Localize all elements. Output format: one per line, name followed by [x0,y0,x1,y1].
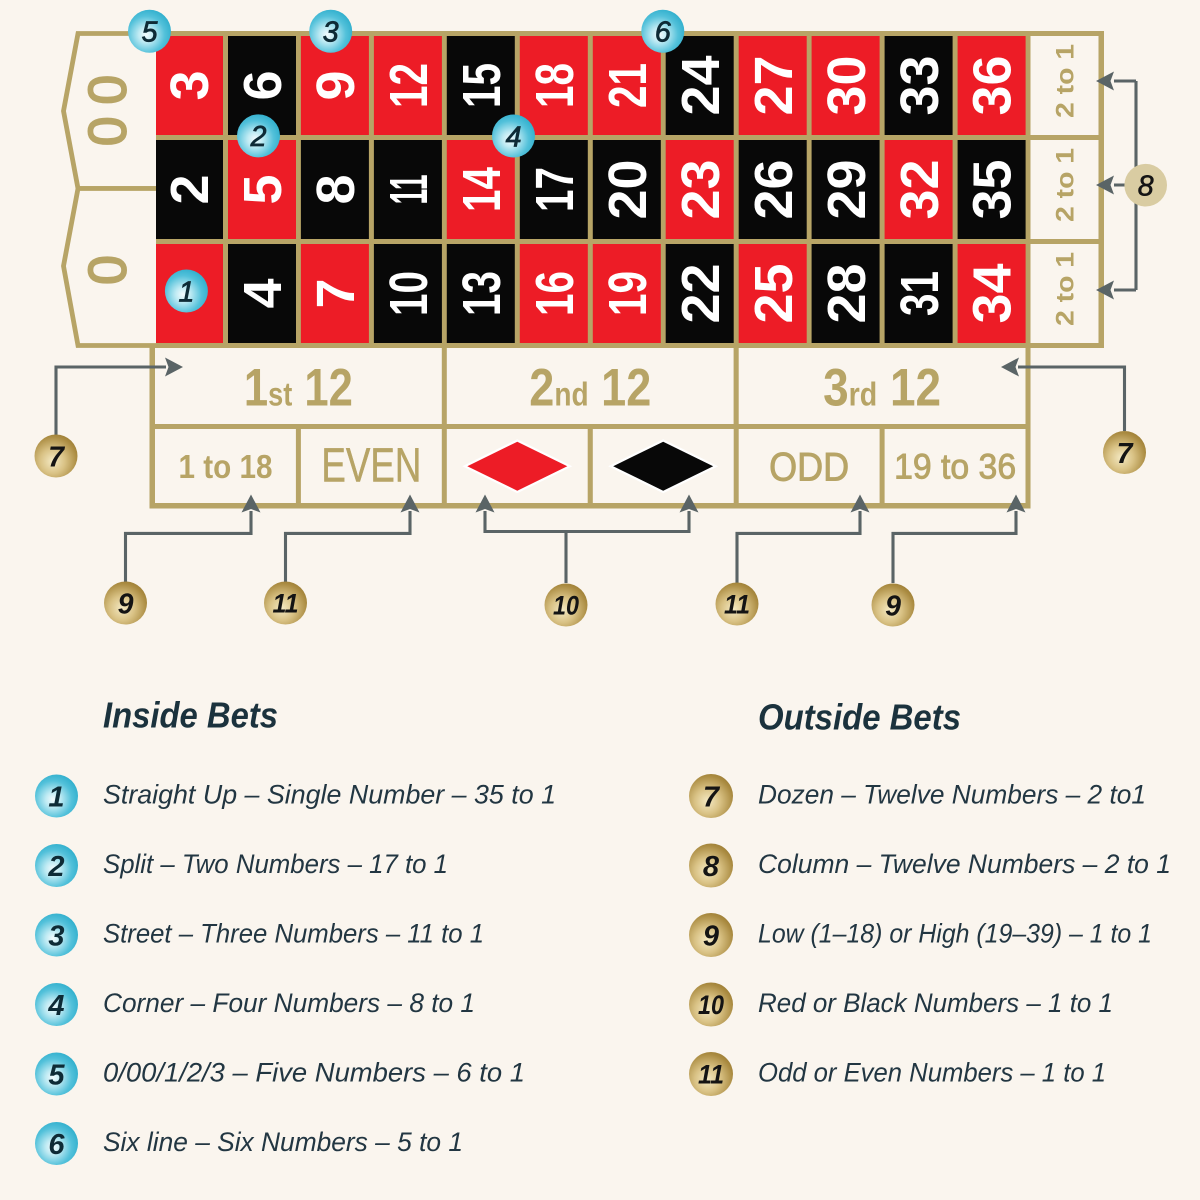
svg-text:7: 7 [703,781,721,813]
svg-text:1st 12: 1st 12 [244,359,353,418]
svg-text:1: 1 [48,781,64,813]
svg-text:3: 3 [48,920,64,952]
svg-text:11: 11 [698,1060,724,1090]
svg-text:28: 28 [817,264,877,324]
svg-text:13: 13 [452,271,512,316]
svg-text:12: 12 [379,63,439,108]
svg-text:9: 9 [306,70,366,100]
svg-text:9: 9 [118,588,134,620]
svg-text:35: 35 [963,160,1023,220]
svg-text:19 to 36: 19 to 36 [894,447,1016,486]
svg-text:2nd 12: 2nd 12 [529,359,651,418]
svg-text:23: 23 [671,160,731,220]
svg-text:32: 32 [890,160,950,220]
svg-text:8: 8 [1138,171,1154,203]
svg-text:6: 6 [655,17,671,49]
svg-text:8: 8 [306,174,366,204]
svg-text:20: 20 [598,160,658,220]
svg-text:2 to 1: 2 to 1 [1052,252,1080,326]
svg-text:7: 7 [48,441,65,473]
svg-text:Odd or Even Numbers – 1 to 1: Odd or Even Numbers – 1 to 1 [758,1058,1106,1088]
svg-text:1 to 18: 1 to 18 [179,448,273,485]
svg-text:2 to 1: 2 to 1 [1052,148,1080,222]
svg-text:25: 25 [744,264,804,324]
svg-text:15: 15 [452,63,512,108]
svg-text:21: 21 [598,63,658,108]
svg-text:18: 18 [525,63,585,108]
svg-text:3: 3 [160,70,220,100]
svg-text:Street – Three Numbers – 11 to: Street – Three Numbers – 11 to 1 [103,919,484,949]
svg-text:22: 22 [671,264,731,324]
svg-text:11: 11 [273,589,299,619]
svg-text:Red or Black Numbers – 1 to 1: Red or Black Numbers – 1 to 1 [758,988,1113,1018]
svg-text:9: 9 [885,590,901,622]
svg-text:29: 29 [817,160,877,220]
svg-text:Column – Twelve Numbers – 2 to: Column – Twelve Numbers – 2 to 1 [758,849,1171,879]
svg-text:6: 6 [48,1129,65,1161]
svg-text:17: 17 [525,167,585,212]
svg-text:16: 16 [525,271,585,316]
svg-text:00: 00 [79,63,138,146]
svg-text:26: 26 [744,160,804,220]
svg-text:2: 2 [250,121,267,153]
svg-text:Inside Bets: Inside Bets [103,695,278,736]
svg-text:14: 14 [452,167,512,212]
svg-text:0/00/1/2/3 – Five Numbers – 6: 0/00/1/2/3 – Five Numbers – 6 to 1 [103,1058,525,1088]
svg-text:7: 7 [1117,438,1134,470]
svg-text:Six line – Six Numbers – 5 to: Six line – Six Numbers – 5 to 1 [103,1127,463,1157]
svg-text:10: 10 [553,591,579,621]
svg-text:33: 33 [890,56,950,116]
svg-text:27: 27 [744,56,804,116]
svg-text:6: 6 [233,70,293,100]
svg-text:5: 5 [233,174,293,204]
svg-text:19: 19 [598,271,658,316]
svg-text:9: 9 [703,920,719,952]
svg-text:2: 2 [160,174,220,204]
svg-text:24: 24 [671,56,731,116]
svg-text:Corner – Four Numbers – 8 to 1: Corner – Four Numbers – 8 to 1 [103,988,475,1018]
svg-text:Low (1–18) or High (19–39) – 1: Low (1–18) or High (19–39) – 1 to 1 [758,919,1152,949]
svg-text:1: 1 [178,276,194,308]
svg-text:10: 10 [379,271,439,316]
svg-text:EVEN: EVEN [321,440,421,493]
svg-text:0: 0 [79,255,138,284]
svg-text:31: 31 [890,271,950,316]
svg-text:Outside Bets: Outside Bets [758,696,961,737]
svg-text:5: 5 [48,1059,65,1091]
svg-text:10: 10 [698,990,724,1020]
svg-text:7: 7 [306,278,366,308]
svg-text:Straight Up – Single Number –: Straight Up – Single Number – 35 to 1 [103,780,556,810]
svg-text:30: 30 [817,56,877,116]
svg-text:11: 11 [724,590,750,620]
svg-text:34: 34 [963,264,1023,324]
svg-text:2 to 1: 2 to 1 [1052,44,1080,118]
svg-text:3: 3 [323,17,339,49]
svg-text:8: 8 [703,851,720,883]
svg-text:36: 36 [963,56,1023,116]
svg-text:3rd 12: 3rd 12 [823,359,941,418]
svg-text:5: 5 [142,17,158,49]
svg-text:4: 4 [506,121,522,153]
svg-text:ODD: ODD [769,445,849,489]
svg-text:4: 4 [233,278,293,308]
svg-text:4: 4 [47,990,64,1022]
svg-text:11: 11 [379,175,439,205]
svg-text:2: 2 [47,851,64,883]
svg-text:Dozen – Twelve Numbers – 2 to1: Dozen – Twelve Numbers – 2 to1 [758,780,1146,810]
svg-text:Split – Two Numbers – 17 to 1: Split – Two Numbers – 17 to 1 [103,849,448,879]
